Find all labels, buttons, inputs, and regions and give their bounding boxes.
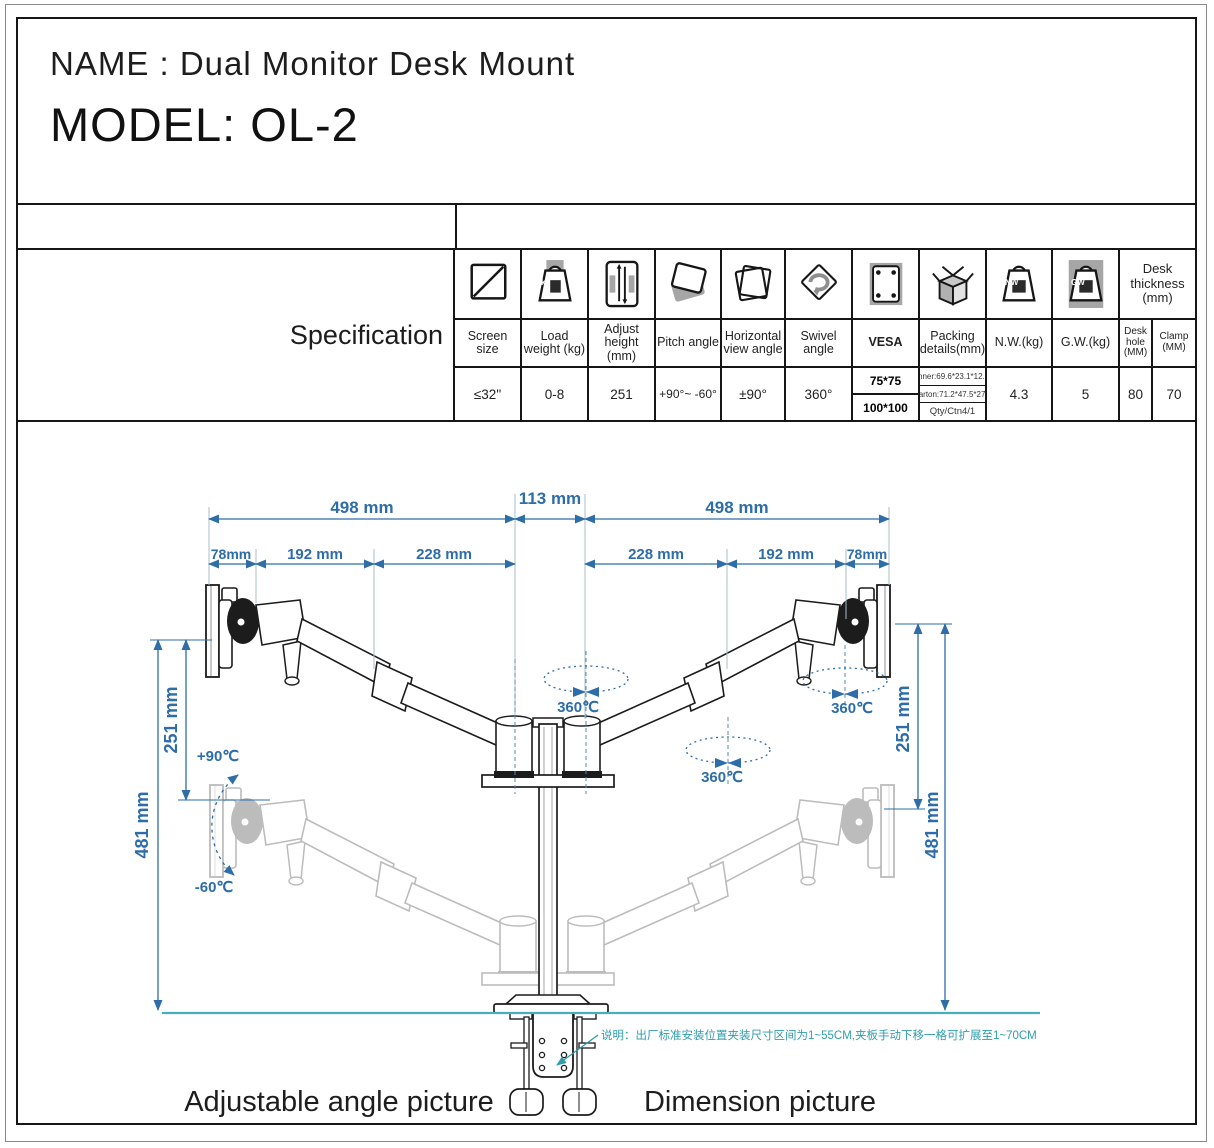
dim-78-right: 78mm — [847, 546, 887, 562]
col-label-swivel-angle: Swivel angle — [786, 329, 851, 358]
dim-113: 113 mm — [519, 489, 581, 508]
product-name-line: NAME : Dual Monitor Desk Mount — [50, 45, 1195, 83]
desk-thickness-header: Desk thickness (mm) — [1120, 250, 1195, 320]
swivel-label-3: 360℃ — [831, 700, 873, 717]
title-block: NAME : Dual Monitor Desk Mount MODEL: OL… — [18, 19, 1195, 205]
value-adjust-height: 251 — [610, 387, 633, 402]
dim-192-left: 192 mm — [287, 546, 343, 563]
nw-letter: NW — [1005, 278, 1018, 287]
caption-adjustable-angle: Adjustable angle picture — [184, 1086, 494, 1118]
dimension-diagram: 说明：出厂标准安装位置夹装尺寸区间为1~55CM,夹板手动下移一格可扩展至1~7… — [18, 443, 1195, 1123]
dim-498-left: 498 mm — [330, 498, 393, 517]
value-packing: Inner:69.6*23.1*12.3 Carton:71.2*47.5*27… — [920, 368, 987, 420]
value-clamp: 70 — [1166, 387, 1181, 402]
kg-letter: kg — [541, 278, 550, 287]
col-label-vesa: VESA — [867, 335, 903, 351]
ghost-left-arm — [210, 785, 538, 978]
col-label-horizontal-view: Horizontal view angle — [722, 329, 784, 358]
swivel-rotate-icon — [786, 250, 853, 320]
swivel-label-2: 360℃ — [701, 769, 743, 786]
left-monitor-arm — [206, 585, 534, 778]
specification-label: Specification — [18, 250, 455, 420]
spec-sheet-page: NAME : Dual Monitor Desk Mount MODEL: OL… — [0, 0, 1214, 1148]
col-label-gw: G.W.(kg) — [1060, 335, 1111, 351]
value-screen-size: ≤32" — [474, 387, 501, 402]
weight-kg-icon: kg — [522, 250, 589, 320]
screen-diagonal-icon — [455, 250, 522, 320]
col-label-screen-size: Screen size — [455, 329, 520, 358]
dim-192-right: 192 mm — [758, 546, 814, 563]
right-monitor-arm — [562, 585, 890, 778]
tilt-down-label: -60℃ — [195, 879, 234, 896]
vesa-100: 100*100 — [853, 395, 918, 420]
swivel-label-1: 360℃ — [557, 699, 599, 716]
value-vesa: 75*75 100*100 — [853, 368, 920, 420]
col-label-adjust-height: Adjust height (mm) — [589, 322, 654, 365]
dim-481-left: 481 mm — [132, 791, 152, 858]
clamp-note: 说明：出厂标准安装位置夹装尺寸区间为1~55CM,夹板手动下移一格可扩展至1~7… — [601, 1028, 1037, 1042]
horizontal-view-icon — [722, 250, 786, 320]
packing-inner: Inner:69.6*23.1*12.3 — [920, 368, 985, 385]
col-label-pitch-angle: Pitch angle — [656, 335, 720, 351]
height-adjust-icon — [589, 250, 656, 320]
gw-letter: GW — [1071, 278, 1085, 287]
dim-78-left: 78mm — [211, 546, 251, 562]
tilt-up-label: +90℃ — [197, 748, 239, 765]
desk-clamp — [510, 1013, 596, 1115]
col-label-nw: N.W.(kg) — [994, 335, 1045, 351]
inner-frame: NAME : Dual Monitor Desk Mount MODEL: OL… — [16, 17, 1197, 1125]
packing-box-icon — [920, 250, 987, 320]
value-desk-hole: 80 — [1128, 387, 1143, 402]
pitch-tilt-icon — [656, 250, 722, 320]
spacer-cell-left — [18, 205, 457, 248]
spec-grid: kg — [455, 250, 1195, 420]
value-nw: 4.3 — [1010, 387, 1029, 402]
value-swivel-angle: 360° — [805, 387, 833, 402]
caption-dimension: Dimension picture — [644, 1086, 876, 1118]
dim-228-left: 228 mm — [416, 546, 472, 563]
col-label-clamp: Clamp (MM) — [1153, 331, 1195, 355]
spacer-cell-right — [457, 205, 1195, 248]
dim-251-left: 251 mm — [161, 686, 181, 753]
packing-qty: Qty/Ctn4/1 — [920, 402, 985, 420]
dim-228-right: 228 mm — [628, 546, 684, 563]
gross-weight-icon: GW — [1053, 250, 1120, 320]
dim-251-right: 251 mm — [893, 685, 913, 752]
spacer-row — [18, 205, 1195, 250]
vesa-75: 75*75 — [853, 368, 918, 395]
dim-481-right: 481 mm — [922, 791, 942, 858]
net-weight-icon: NW — [987, 250, 1053, 320]
value-gw: 5 — [1082, 387, 1090, 402]
col-label-packing: Packing details(mm) — [920, 329, 986, 358]
dim-498-right: 498 mm — [705, 498, 768, 517]
ghost-right-arm — [566, 785, 894, 978]
vesa-plate-icon — [853, 250, 920, 320]
packing-carton: Carton:71.2*47.5*27.5 — [920, 385, 985, 403]
specification-table: Specification kg — [18, 250, 1195, 422]
value-pitch-angle: +90°~ -60° — [659, 387, 717, 401]
col-label-desk-hole: Desk hole (MM) — [1120, 326, 1151, 360]
value-horizontal-view: ±90° — [739, 387, 767, 402]
col-label-load-weight: Load weight (kg) — [522, 329, 587, 358]
value-load-weight: 0-8 — [545, 387, 565, 402]
model-line: MODEL: OL-2 — [50, 97, 1195, 152]
